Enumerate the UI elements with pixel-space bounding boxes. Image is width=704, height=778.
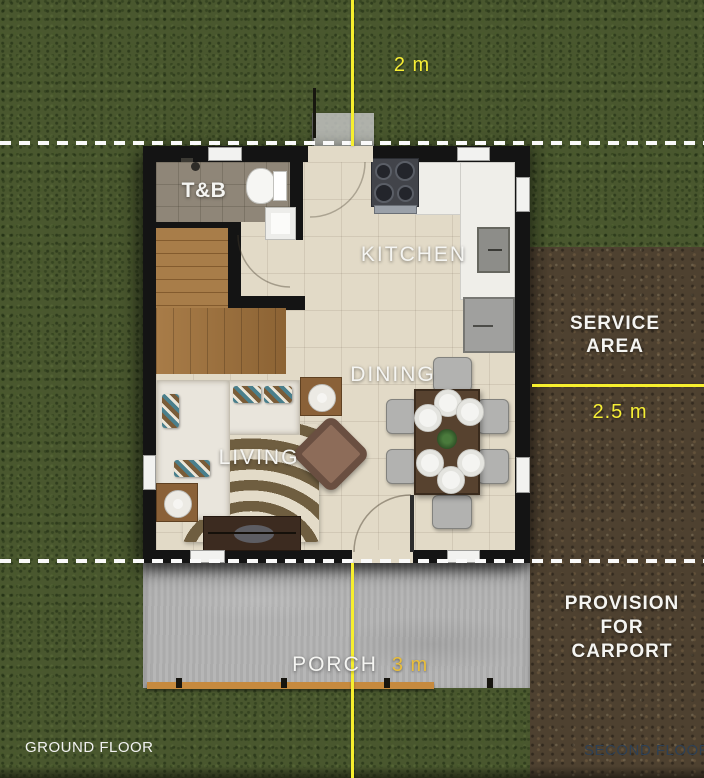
area-label-carport: PROVISION FOR CARPORT bbox=[542, 592, 702, 664]
throw-pillow bbox=[162, 394, 179, 428]
dimension-line-rear bbox=[351, 0, 354, 146]
porch-step bbox=[147, 682, 434, 689]
carport-line2: FOR bbox=[542, 616, 702, 640]
utility-pipe bbox=[313, 88, 316, 138]
tv bbox=[234, 525, 274, 543]
window bbox=[208, 147, 242, 161]
dining-chair bbox=[432, 495, 472, 529]
table-lamp bbox=[164, 490, 192, 518]
plate bbox=[437, 466, 465, 494]
room-label-living: LIVING bbox=[189, 446, 329, 470]
house-outline bbox=[143, 146, 530, 563]
stove-burner bbox=[395, 161, 415, 181]
rear-door-swing-arc bbox=[310, 162, 365, 217]
porch-post bbox=[487, 678, 493, 688]
stair-landing bbox=[156, 308, 286, 374]
plate bbox=[414, 404, 442, 432]
window bbox=[457, 147, 490, 161]
fridge-handle bbox=[473, 325, 493, 327]
service-door bbox=[516, 457, 530, 493]
service-area-line1: SERVICE bbox=[545, 312, 685, 335]
plate bbox=[456, 398, 484, 426]
toilet-tank bbox=[273, 171, 287, 201]
dimension-text-side: 2.5 m bbox=[585, 401, 655, 424]
carport-line1: PROVISION bbox=[542, 592, 702, 616]
carport-line3: CARPORT bbox=[542, 640, 702, 664]
rear-door-opening bbox=[308, 146, 373, 162]
front-door-swing-arc bbox=[354, 495, 411, 552]
tv-console bbox=[203, 516, 301, 551]
faucet bbox=[488, 249, 502, 251]
floor-plan-canvas: T&B KITCHEN DINING LIVING PORCH SERVICE … bbox=[0, 0, 704, 778]
porch-post bbox=[281, 678, 287, 688]
service-area-line2: AREA bbox=[545, 335, 685, 358]
stove-burner bbox=[397, 185, 414, 202]
sheet-title: GROUND FLOOR bbox=[25, 739, 154, 756]
shower-head bbox=[191, 162, 200, 171]
oven-handle bbox=[374, 205, 417, 214]
porch-post bbox=[384, 678, 390, 688]
refrigerator bbox=[463, 297, 515, 353]
tnb-door-swing-arc bbox=[238, 235, 290, 287]
next-sheet-title: SECOND FLOOR bbox=[584, 742, 704, 759]
porch-post bbox=[176, 678, 182, 688]
room-label-dining: DINING bbox=[323, 363, 463, 387]
dimension-line-side bbox=[532, 384, 704, 387]
stove-burner bbox=[375, 163, 392, 180]
toilet bbox=[246, 168, 276, 204]
throw-pillow bbox=[233, 386, 261, 403]
area-label-service: SERVICE AREA bbox=[545, 312, 685, 358]
table-centerpiece bbox=[437, 429, 457, 449]
shower-valve bbox=[181, 158, 193, 162]
table-lamp bbox=[308, 384, 336, 412]
throw-pillow bbox=[264, 386, 292, 403]
soundbar bbox=[208, 532, 296, 534]
room-label-kitchen: KITCHEN bbox=[344, 243, 484, 267]
window bbox=[516, 177, 530, 212]
stair-treads bbox=[156, 228, 228, 308]
room-label-toilet-bath: T&B bbox=[169, 179, 239, 203]
window bbox=[143, 455, 156, 490]
dimension-text-front: 3 m bbox=[383, 654, 437, 677]
dimension-text-rear: 2 m bbox=[382, 54, 442, 77]
stove-burner bbox=[374, 183, 394, 203]
